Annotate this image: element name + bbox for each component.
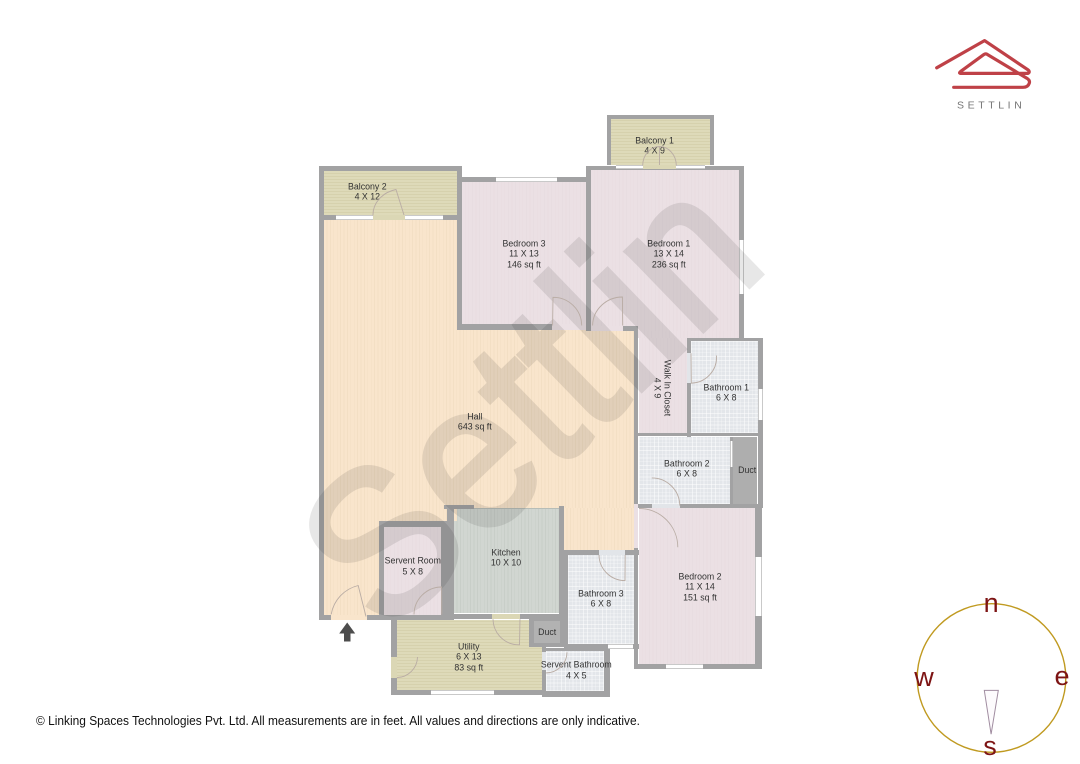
svg-text:Settlin: Settlin <box>255 129 802 669</box>
svg-text:w: w <box>913 662 934 692</box>
svg-text:SETTLIN: SETTLIN <box>957 100 1025 112</box>
svg-text:n: n <box>984 588 999 618</box>
svg-text:s: s <box>983 731 997 761</box>
svg-text:e: e <box>1054 661 1069 691</box>
